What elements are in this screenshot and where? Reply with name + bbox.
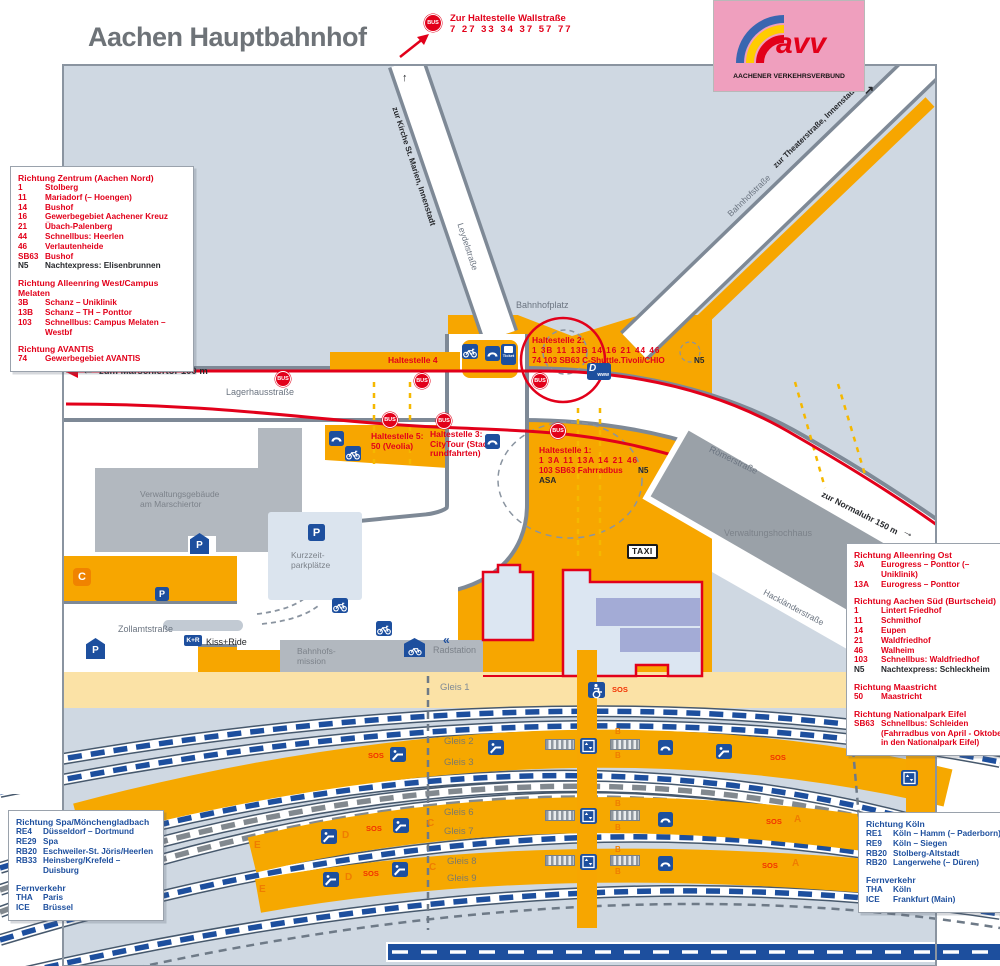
wheelchair-service-icon <box>588 682 605 698</box>
panel-entry <box>18 337 186 344</box>
stop-haltestelle-2-n5: N5 <box>694 356 704 365</box>
panel-entry: 3BSchanz – Uniklinik <box>18 298 186 308</box>
panel-entry: Richtung Maastricht <box>854 682 1000 692</box>
section-letter-c: C <box>427 818 434 829</box>
kissride-icon: K+R <box>184 635 202 646</box>
escalator-icon <box>392 862 408 877</box>
section-letter-b: B <box>615 799 621 808</box>
label-bahnhofplatz: Bahnhofplatz <box>516 300 569 310</box>
label-kurzzeitparkplaetze: Kurzzeit- parkplätze <box>291 551 330 570</box>
bike-icon <box>345 446 361 461</box>
panel-entry: 21Waldfriedhof <box>854 636 1000 646</box>
panel-entry: 13AEurogress – Ponttor <box>854 580 1000 590</box>
platform-label-gleis-6: Gleis 6 <box>444 807 474 818</box>
panel-entry: Richtung Nationalpark Eifel <box>854 709 1000 719</box>
panel-entry: RE9Köln – Siegen <box>866 839 1000 849</box>
panel-entry: 103Schnellbus: Campus Melaten – Westbf <box>18 318 186 338</box>
info-internet-icon: D www <box>587 363 611 380</box>
arrow-up-icon: ↑ <box>402 72 408 84</box>
panel-entry: Richtung AVANTIS <box>18 344 186 354</box>
elevator-icon <box>901 770 918 786</box>
section-letter-e: E <box>254 840 261 851</box>
label-verwaltungshochhaus: Verwaltungshochhaus <box>724 528 812 538</box>
label-normaluhr: zur Normaluhr 150 m <box>820 490 900 537</box>
stairs-ramp <box>610 810 640 821</box>
street-zollamtstrasse: Zollamtstraße <box>118 624 173 634</box>
ticket-machine-label: Ticket <box>503 353 515 358</box>
panel-entry: Fernverkehr <box>866 875 1000 885</box>
platform-label-gleis-3: Gleis 3 <box>444 757 474 768</box>
panel-entry: 14Bushof <box>18 203 186 213</box>
taxi-stand-sign: TAXI <box>627 544 658 559</box>
stop-haltestelle-5: Haltestelle 5: 50 (Veolia) <box>371 432 423 451</box>
panel-entry: Richtung Alleenring West/Campus Melaten <box>18 278 186 298</box>
panel-entry: 21Übach-Palenberg <box>18 222 186 232</box>
panel-entry: ICEFrankfurt (Main) <box>866 895 1000 905</box>
section-letter-b: B <box>615 727 621 736</box>
parking-garage-icon: P <box>190 533 209 554</box>
panel-entry: 13BSchanz – TH – Ponttor <box>18 308 186 318</box>
ticket-machine-screen <box>504 346 513 353</box>
avv-logo-mark: avv <box>776 27 826 61</box>
panel-entry: 46Verlautenheide <box>18 242 186 252</box>
panel-richtung-zentrum: Richtung Zentrum (Aachen Nord)1Stolberg1… <box>10 166 194 372</box>
sos-label: SOS <box>762 861 778 870</box>
stop-haltestelle-1-title: Haltestelle 1: <box>539 446 591 456</box>
panel-entry: THAKöln <box>866 885 1000 895</box>
phone-icon <box>485 346 500 361</box>
avv-logo: avv AACHENER VERKEHRSVERBUND <box>713 0 865 92</box>
escalator-icon <box>393 818 409 833</box>
street-st-marien: zur Kirche St. Marien, Innenstadt <box>389 106 436 227</box>
platform-label-gleis-7: Gleis 7 <box>444 826 474 837</box>
bus-stop-badge: BUS <box>550 423 566 439</box>
label-radstation: Radstation <box>433 645 476 655</box>
section-letter-d: D <box>345 872 352 883</box>
panel-entry: N5Nachtexpress: Elisenbrunnen <box>18 261 186 271</box>
escalator-icon <box>323 872 339 887</box>
parking-garage-icon: P <box>86 638 105 659</box>
platform-label-gleis-9: Gleis 9 <box>447 873 477 884</box>
section-letter-b: B <box>615 867 621 876</box>
panel-entry: Richtung Zentrum (Aachen Nord) <box>18 173 186 183</box>
street-hacklaenderstrasse: Hackländerstraße <box>762 588 826 628</box>
bus-stop-badge: BUS <box>414 373 430 389</box>
street-leydelstrasse: Leydelstraße <box>455 222 479 272</box>
panel-entry: RB20Eschweiler-St. Jöris/Heerlen <box>16 847 156 857</box>
elevator-icon <box>580 854 597 870</box>
section-letter-b: B <box>615 845 621 854</box>
panel-entry: N5Nachtexpress: Schleckheim <box>854 665 1000 675</box>
stop-haltestelle-2-title: Haltestelle 2: <box>532 336 584 346</box>
section-letter-c: C <box>429 862 436 873</box>
panel-richtung-koeln: Richtung KölnRE1Köln – Hamm (– Paderborn… <box>858 812 1000 913</box>
bus-badge-wallstrasse: BUS <box>424 14 442 32</box>
phone-icon <box>658 812 673 827</box>
panel-entry: RE1Köln – Hamm (– Paderborn) <box>866 829 1000 839</box>
sos-label: SOS <box>770 753 786 762</box>
panel-entry: 11Schmithof <box>854 616 1000 626</box>
panel-entry: 44Schnellbus: Heerlen <box>18 232 186 242</box>
platform-label-gleis-1: Gleis 1 <box>440 682 470 693</box>
phone-icon <box>329 431 344 446</box>
bus-stop-badge: BUS <box>532 373 548 389</box>
panel-entry: Richtung Spa/Mönchengladbach <box>16 817 156 827</box>
elevator-icon <box>580 808 597 824</box>
panel-entry: RB20Langerwehe (– Düren) <box>866 858 1000 868</box>
panel-entry <box>854 675 1000 682</box>
sos-label: SOS <box>363 869 379 878</box>
carsharing-icon: C <box>73 568 91 586</box>
section-letter-d: D <box>342 830 349 841</box>
escalator-icon <box>390 747 406 762</box>
parking-icon: P <box>155 587 169 601</box>
stairs-ramp <box>610 855 640 866</box>
station-map-page: Aachen Hauptbahnhof BUS Zur Haltestelle … <box>0 0 1000 966</box>
stop-haltestelle-1-lines1: 1 3A 11 13A 14 21 46 <box>539 456 638 465</box>
section-letter-a: A <box>792 858 799 869</box>
panel-entry: RE4Düsseldorf – Dortmund <box>16 827 156 837</box>
panel-entry: 14Eupen <box>854 626 1000 636</box>
label-kissride: Kiss+Ride <box>206 637 247 647</box>
panel-entry: Richtung Köln <box>866 819 1000 829</box>
panel-entry: Fernverkehr <box>16 883 156 893</box>
panel-entry: 1Lintert Friedhof <box>854 606 1000 616</box>
section-letter-a: A <box>794 814 801 825</box>
panel-entry: 74Gewerbegebiet AVANTIS <box>18 354 186 364</box>
panel-entry: 46Walheim <box>854 646 1000 656</box>
platform-label-gleis-2: Gleis 2 <box>444 736 474 747</box>
panel-entry <box>16 876 156 883</box>
section-letter-b: B <box>615 751 621 760</box>
label-bahnhofsmission: Bahnhofs- mission <box>297 647 336 666</box>
stairs-ramp <box>545 739 575 750</box>
street-bahnhofstrasse: Bahnhofstraße <box>726 173 773 219</box>
panel-entry <box>866 868 1000 875</box>
panel-richtung-spa: Richtung Spa/MönchengladbachRE4Düsseldor… <box>8 810 164 921</box>
panel-entry: 103Schnellbus: Waldfriedhof <box>854 655 1000 665</box>
stairs-ramp <box>545 855 575 866</box>
bike-icon <box>376 621 392 636</box>
panel-entry: SB63Schnellbus: Schleiden (Fahrradbus vo… <box>854 719 1000 748</box>
bus-stop-badge: BUS <box>275 371 291 387</box>
stop-haltestelle-4: Haltestelle 4 <box>388 356 438 366</box>
sos-label: SOS <box>612 685 628 694</box>
panel-entry: RB20Stolberg-Altstadt <box>866 849 1000 859</box>
stairs-ramp <box>545 810 575 821</box>
sos-label: SOS <box>368 751 384 760</box>
panel-entry <box>18 271 186 278</box>
sos-label: SOS <box>366 824 382 833</box>
ticket-machine-icon: Ticket <box>501 344 516 365</box>
kissride-chevrons: « <box>443 634 450 647</box>
phone-icon <box>485 434 500 449</box>
street-roemerstrasse: Römerstraße <box>708 444 760 476</box>
wallstrasse-note-line2: 7 27 33 34 37 57 77 <box>450 25 573 36</box>
platform-label-gleis-8: Gleis 8 <box>447 856 477 867</box>
stop-haltestelle-1-asa: ASA <box>539 476 556 485</box>
escalator-icon <box>488 740 504 755</box>
phone-icon <box>658 740 673 755</box>
stairs-ramp <box>610 739 640 750</box>
section-letter-b: B <box>615 823 621 832</box>
section-letter-e: E <box>259 884 266 895</box>
page-title: Aachen Hauptbahnhof <box>88 22 367 52</box>
stop-haltestelle-2-lines1: 1 3B 11 13B 14 16 21 44 46 <box>532 346 660 355</box>
elevator-icon <box>580 738 597 754</box>
escalator-icon <box>321 829 337 844</box>
map-overlay: Aachen Hauptbahnhof BUS Zur Haltestelle … <box>0 0 1000 966</box>
arrow-right-icon: → <box>900 524 917 541</box>
panel-entry: THAParis <box>16 893 156 903</box>
panel-entry: 50Maastricht <box>854 692 1000 702</box>
bus-stop-badge: BUS <box>436 413 452 429</box>
panel-entry: 3AEurogress – Ponttor (– Uniklinik) <box>854 560 1000 580</box>
escalator-icon <box>716 744 732 759</box>
stop-haltestelle-1-lines2: 103 SB63 Fahrradbus <box>539 466 623 475</box>
street-lagerhausstrasse: Lagerhausstraße <box>226 387 294 397</box>
panel-entry: 11Mariadorf (– Hoengen) <box>18 193 186 203</box>
arrow-upright-icon: ↗ <box>864 84 874 97</box>
panel-entry: SB63Bushof <box>18 252 186 262</box>
bike-icon <box>462 344 478 359</box>
panel-entry: RE29Spa <box>16 837 156 847</box>
panel-entry: ICEBrüssel <box>16 903 156 913</box>
panel-entry: 16Gewerbegebiet Aachener Kreuz <box>18 212 186 222</box>
panel-entry: RB33Heinsberg/Krefeld – Duisburg <box>16 856 156 876</box>
stop-haltestelle-1-n5: N5 <box>638 466 648 475</box>
panel-richtung-alleenring-ost: Richtung Alleenring Ost3AEurogress – Pon… <box>846 543 1000 756</box>
bike-icon <box>332 598 348 613</box>
street-theaterstrasse: zur Theaterstraße, Innenstadt <box>772 86 859 170</box>
parking-icon: P <box>308 524 325 541</box>
panel-entry: Richtung Aachen Süd (Burtscheid) <box>854 596 1000 606</box>
panel-entry <box>854 589 1000 596</box>
sos-label: SOS <box>766 817 782 826</box>
avv-logo-caption: AACHENER VERKEHRSVERBUND <box>714 73 864 80</box>
panel-entry <box>854 702 1000 709</box>
radstation-icon <box>404 638 425 657</box>
label-verwaltungsgebaeude: Verwaltungsgebäude am Marschiertor <box>140 490 219 509</box>
panel-entry: 1Stolberg <box>18 183 186 193</box>
bus-stop-badge: BUS <box>382 412 398 428</box>
phone-icon <box>658 856 673 871</box>
panel-entry: Richtung Alleenring Ost <box>854 550 1000 560</box>
